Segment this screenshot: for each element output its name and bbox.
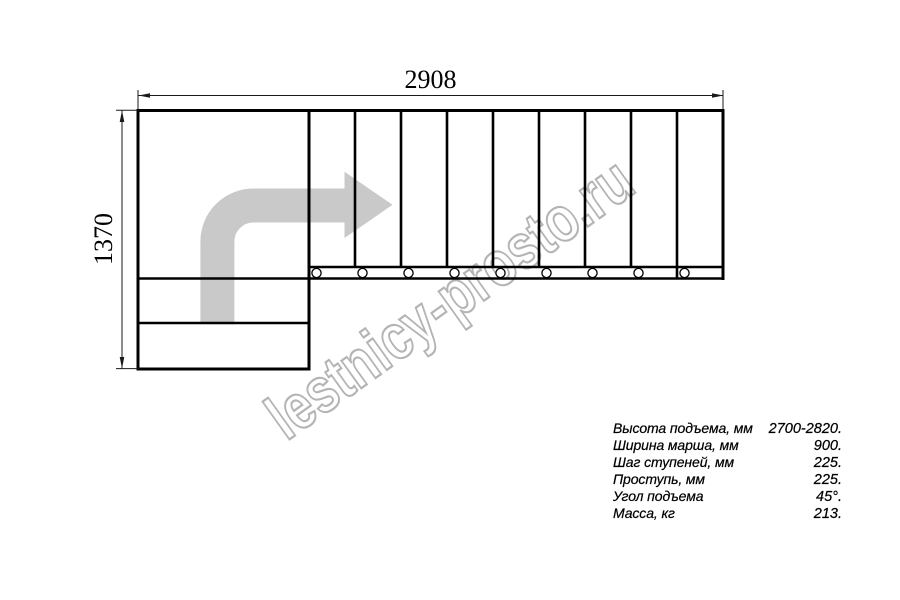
- svg-text:Масса, кг: Масса, кг: [613, 505, 675, 521]
- svg-text:Ширина марша, мм: Ширина марша, мм: [613, 437, 739, 453]
- svg-text:225.: 225.: [813, 472, 842, 488]
- svg-text:45°.: 45°.: [816, 489, 842, 505]
- svg-text:900.: 900.: [814, 438, 842, 454]
- svg-text:2700-2820.: 2700-2820.: [768, 421, 842, 437]
- svg-text:1370: 1370: [89, 213, 118, 265]
- svg-text:2908: 2908: [405, 65, 457, 94]
- svg-text:Проступь, мм: Проступь, мм: [613, 471, 705, 487]
- svg-text:Угол подъема: Угол подъема: [612, 488, 704, 504]
- svg-text:213.: 213.: [813, 506, 842, 522]
- svg-text:Высота подъема, мм: Высота подъема, мм: [613, 420, 753, 436]
- svg-text:Шаг ступеней, мм: Шаг ступеней, мм: [613, 454, 734, 470]
- svg-text:225.: 225.: [813, 455, 842, 471]
